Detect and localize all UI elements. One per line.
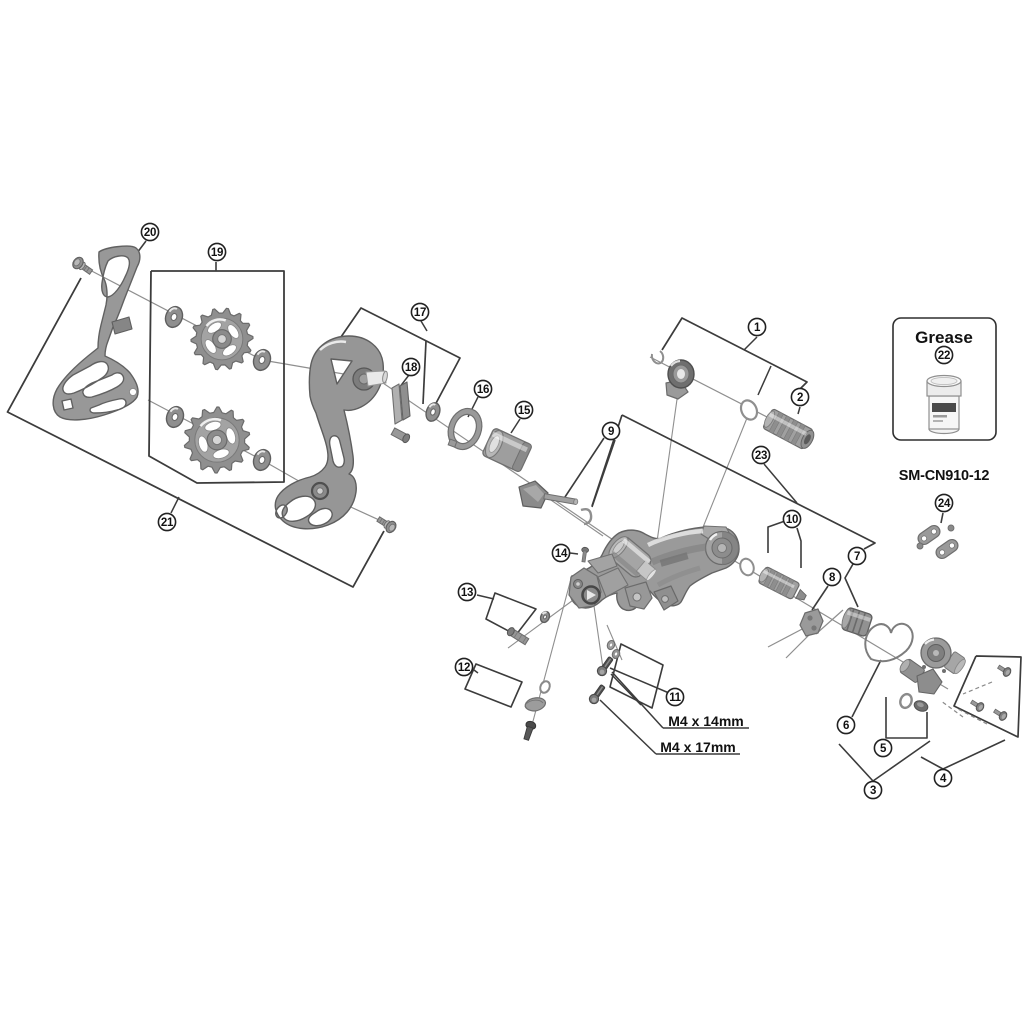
svg-text:M4 x 14mm: M4 x 14mm — [668, 713, 743, 729]
svg-text:20: 20 — [144, 227, 156, 239]
svg-text:24: 24 — [938, 498, 951, 510]
svg-text:7: 7 — [854, 551, 860, 563]
svg-text:5: 5 — [880, 743, 887, 755]
svg-text:15: 15 — [518, 405, 531, 417]
svg-text:19: 19 — [211, 247, 223, 259]
svg-text:14: 14 — [555, 548, 568, 560]
svg-text:3: 3 — [870, 785, 876, 797]
svg-text:8: 8 — [829, 572, 836, 584]
svg-text:23: 23 — [755, 450, 767, 462]
svg-text:21: 21 — [161, 517, 174, 529]
svg-text:16: 16 — [477, 384, 489, 396]
svg-text:17: 17 — [414, 307, 426, 319]
svg-text:10: 10 — [786, 514, 798, 526]
svg-text:1: 1 — [754, 322, 761, 334]
svg-text:22: 22 — [938, 350, 950, 362]
svg-text:9: 9 — [608, 426, 614, 438]
svg-text:12: 12 — [458, 662, 470, 674]
svg-text:M4 x 17mm: M4 x 17mm — [660, 739, 735, 755]
svg-text:Grease: Grease — [915, 328, 973, 347]
svg-text:11: 11 — [669, 692, 681, 704]
svg-text:SM-CN910-12: SM-CN910-12 — [899, 468, 990, 484]
svg-text:2: 2 — [797, 392, 803, 404]
svg-text:18: 18 — [405, 362, 418, 374]
svg-text:6: 6 — [843, 720, 849, 732]
svg-text:13: 13 — [461, 587, 473, 599]
svg-text:4: 4 — [940, 773, 947, 785]
